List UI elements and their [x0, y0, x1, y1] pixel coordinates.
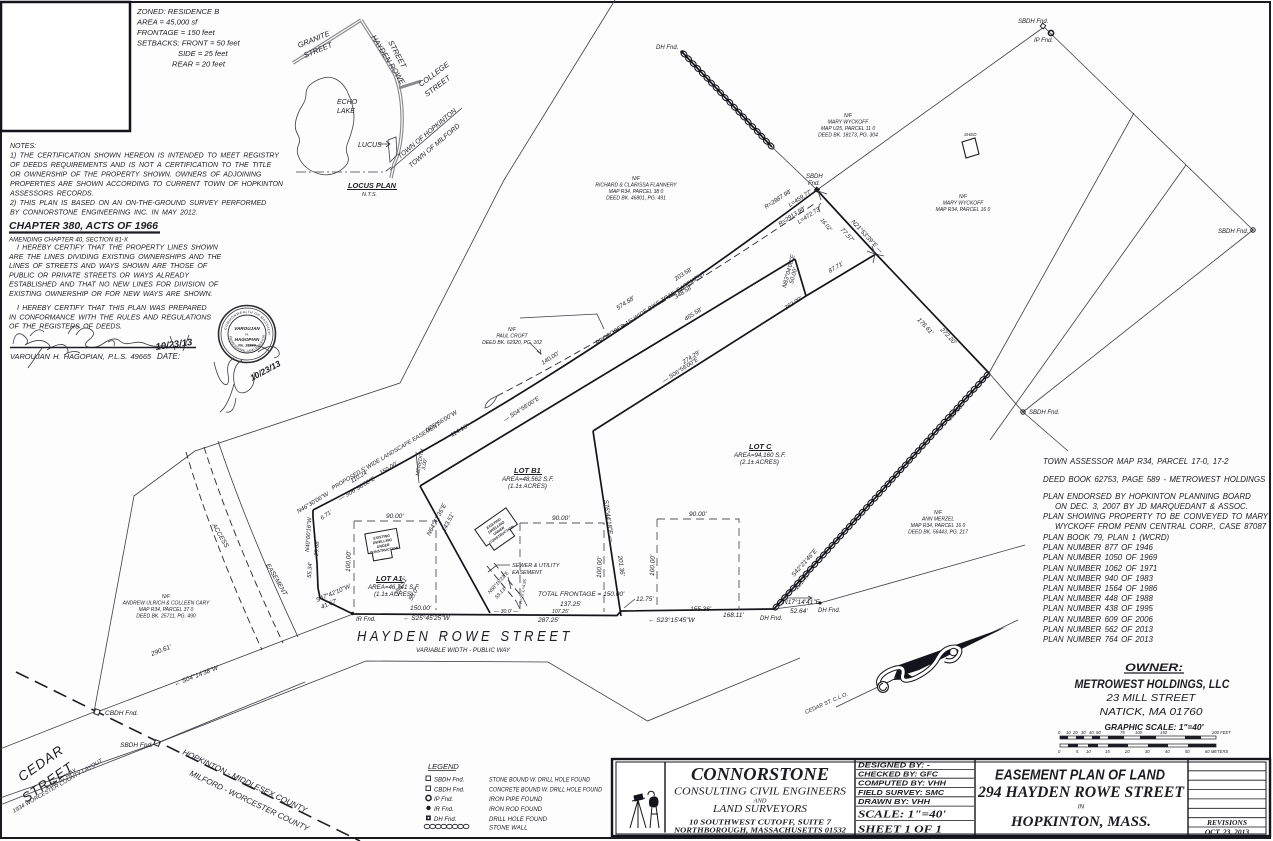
svg-text:CONCRETE BOUND W. DRILL HOLE F: CONCRETE BOUND W. DRILL HOLE FOUND — [489, 787, 603, 793]
svg-text:Fnd.: Fnd. — [808, 181, 820, 187]
svg-text:ECHO: ECHO — [337, 99, 358, 106]
svg-text:PLAN NUMBER 438 OF 1995: PLAN NUMBER 438 OF 1995 — [1043, 604, 1154, 613]
svg-text:ESTABLISHED AND THAT NO NEW LI: ESTABLISHED AND THAT NO NEW LINES FOR DI… — [9, 282, 219, 289]
svg-text:20: 20 — [1124, 749, 1130, 754]
svg-text:H.: H. — [245, 333, 249, 337]
svg-text:HAYDEN ROWE STREET: HAYDEN ROWE STREET — [357, 629, 573, 645]
svg-text:DEED BK. 46801, PG. 491: DEED BK. 46801, PG. 491 — [606, 196, 666, 202]
svg-text:1) THE CERTIFICATION SHOWN HER: 1) THE CERTIFICATION SHOWN HEREON IS INT… — [10, 153, 280, 160]
svg-text:DEED BK. 62920, PG. 102: DEED BK. 62920, PG. 102 — [482, 340, 542, 346]
svg-text:90.00': 90.00' — [689, 511, 707, 518]
svg-text:20: 20 — [1072, 730, 1078, 735]
svg-text:LOT B1: LOT B1 — [514, 466, 541, 475]
svg-text:OR OWNERSHIP OF THE PROPERTY S: OR OWNERSHIP OF THE PROPERTY SHOWN. OWNE… — [10, 172, 262, 179]
svg-text:FIELD SURVEY: SMC: FIELD SURVEY: SMC — [858, 790, 945, 797]
svg-text:LOCUS PLAN: LOCUS PLAN — [348, 181, 397, 190]
svg-text:SBDH: SBDH — [806, 174, 823, 180]
svg-text:100.00': 100.00' — [596, 556, 604, 578]
svg-text:— 30.0' —: — 30.0' — — [493, 609, 519, 615]
svg-text:10 SOUTHWEST CUTOFF, SUITE: 10 SOUTHWEST CUTOFF, SUITE 7 — [689, 819, 832, 827]
svg-text:LAKE: LAKE — [337, 108, 355, 115]
svg-text:DESIGNED BY: -: DESIGNED BY: - — [858, 763, 931, 770]
svg-text:← S25°45'25"W: ← S25°45'25"W — [403, 614, 450, 622]
svg-text:N/F: N/F — [508, 327, 517, 333]
svg-text:100.00': 100.00' — [345, 550, 353, 572]
svg-text:DH Fnd.: DH Fnd. — [760, 616, 782, 622]
svg-text:PUBLIC OR PRIVATE STREETS OR W: PUBLIC OR PRIVATE STREETS OR WAYS ALREAD… — [9, 272, 190, 279]
svg-text:IR Fnd.: IR Fnd. — [434, 807, 454, 813]
svg-text:ARE THE LINES DIVIDING EXISTIN: ARE THE LINES DIVIDING EXISTING OWNERSHI… — [8, 254, 222, 261]
svg-text:DH Fnd.: DH Fnd. — [818, 608, 840, 614]
svg-text:VARIABLE WIDTH - PUBLIC WAY: VARIABLE WIDTH - PUBLIC WAY — [416, 648, 511, 654]
svg-text:TOWN ASSESSOR MAP R34, PARCEL: TOWN ASSESSOR MAP R34, PARCEL 17-0, 17-2 — [1043, 457, 1229, 466]
svg-text:VAROUJAN: VAROUJAN — [234, 326, 260, 331]
svg-text:LAND SURVEYORS: LAND SURVEYORS — [712, 804, 807, 815]
svg-text:I HEREBY CERTIFY THAT THE PROP: I HEREBY CERTIFY THAT THE PROPERTY LINES… — [17, 245, 219, 252]
svg-text:MAP R34, PARCEL 38 0: MAP R34, PARCEL 38 0 — [609, 189, 664, 195]
svg-text:200 FEET: 200 FEET — [1211, 730, 1231, 735]
svg-text:HAGOPIAN: HAGOPIAN — [235, 337, 260, 342]
svg-text:MAP R34, PARCEL 16 0: MAP R34, PARCEL 16 0 — [936, 207, 991, 213]
svg-text:12.75': 12.75' — [636, 596, 654, 603]
svg-text:107.25': 107.25' — [552, 609, 570, 615]
svg-text:10: 10 — [1086, 749, 1091, 754]
svg-text:TOTAL FRONTAGE = 150.00': TOTAL FRONTAGE = 150.00' — [538, 591, 625, 598]
svg-text:SEWER & UTILITY: SEWER & UTILITY — [512, 563, 560, 569]
svg-text:LINES OF STREETS AND WAYS SHOW: LINES OF STREETS AND WAYS SHOWN ARE THOS… — [9, 263, 208, 270]
svg-text:PLAN SHOWING PROPERTY TO BE CO: PLAN SHOWING PROPERTY TO BE CONVEYED TO … — [1043, 512, 1269, 521]
svg-text:40: 40 — [1165, 749, 1170, 754]
svg-text:LEGEND: LEGEND — [428, 762, 459, 771]
svg-text:IN: IN — [1078, 804, 1085, 811]
svg-text:AREA=94,160 S.F.: AREA=94,160 S.F. — [733, 452, 786, 459]
svg-text:MARY WYCKOFF: MARY WYCKOFF — [943, 201, 985, 207]
svg-text:RICHARD & CLARISSA FLANNERY: RICHARD & CLARISSA FLANNERY — [595, 183, 677, 189]
svg-text:60 METERS: 60 METERS — [1205, 749, 1228, 754]
svg-text:PROPERTIES ARE SHOWN ACCORDING: PROPERTIES ARE SHOWN ACCORDING TO CURREN… — [10, 181, 284, 188]
svg-text:52.64': 52.64' — [790, 608, 808, 615]
svg-text:MAP R34, PARCEL 16 0: MAP R34, PARCEL 16 0 — [911, 523, 966, 529]
svg-text:40: 40 — [1089, 730, 1094, 735]
svg-text:55.34': 55.34' — [307, 561, 314, 578]
svg-text:294 HAYDEN ROWE STREET: 294 HAYDEN ROWE STREET — [977, 784, 1185, 801]
svg-text:100.00': 100.00' — [649, 554, 657, 576]
svg-text:SHED: SHED — [964, 132, 977, 137]
svg-text:30: 30 — [1081, 730, 1086, 735]
svg-text:IN CONFORMANCE WITH THE RULES: IN CONFORMANCE WITH THE RULES AND REGULA… — [9, 314, 211, 321]
svg-text:CONSULTING CIVIL ENGINEERS: CONSULTING CIVIL ENGINEERS — [674, 787, 846, 798]
svg-text:ON DEC. 3, 2007 BY JD MARQUEDA: ON DEC. 3, 2007 BY JD MARQUEDANT & ASSOC… — [1055, 502, 1248, 511]
svg-text:75: 75 — [1120, 730, 1125, 735]
svg-text:CHECKED BY: GFC: CHECKED BY: GFC — [858, 771, 939, 778]
svg-text:HOPKINTON, MASS.: HOPKINTON, MASS. — [1010, 814, 1151, 830]
svg-text:30: 30 — [1145, 749, 1150, 754]
svg-text:ANN MERZEL: ANN MERZEL — [921, 517, 954, 523]
svg-text:137.25': 137.25' — [560, 601, 582, 608]
svg-text:(1.1± ACRES): (1.1± ACRES) — [508, 483, 547, 490]
svg-text:AREA=48,562 S.F.: AREA=48,562 S.F. — [501, 476, 554, 483]
svg-text:PLAN NUMBER 877 OF 1946: PLAN NUMBER 877 OF 1946 — [1043, 543, 1154, 552]
svg-text:DEED BK. 25711, PG. 490: DEED BK. 25711, PG. 490 — [136, 614, 196, 620]
svg-text:2) THIS PLAN IS BASED ON AN ON: 2) THIS PLAN IS BASED ON AN ON-THE-GROUN… — [9, 200, 266, 207]
svg-text:STONE BOUND W. DRILL HOLE FOUN: STONE BOUND W. DRILL HOLE FOUND — [489, 778, 591, 784]
svg-text:EASEMENT: EASEMENT — [512, 570, 543, 576]
svg-text:STONE WALL: STONE WALL — [489, 826, 527, 832]
svg-text:OCT. 23, 2013: OCT. 23, 2013 — [1205, 828, 1250, 837]
svg-text:IRON PIPE FOUND: IRON PIPE FOUND — [489, 797, 543, 803]
svg-text:EASEMENT PLAN OF LAND: EASEMENT PLAN OF LAND — [995, 768, 1165, 784]
svg-text:LUCUS: LUCUS — [358, 142, 382, 149]
svg-text:IRON ROD FOUND: IRON ROD FOUND — [489, 807, 543, 813]
svg-text:N/F: N/F — [844, 113, 853, 119]
svg-text:PLAN NUMBER 1050 OF 1969: PLAN NUMBER 1050 OF 1969 — [1043, 553, 1158, 562]
svg-text:AREA = 45,000 sf: AREA = 45,000 sf — [136, 18, 198, 27]
svg-text:LOT A1: LOT A1 — [376, 574, 402, 583]
svg-text:IP Fnd.: IP Fnd. — [434, 797, 453, 803]
svg-text:PLAN NUMBER 448 OF 1988: PLAN NUMBER 448 OF 1988 — [1043, 594, 1154, 603]
svg-text:155.36': 155.36' — [690, 606, 712, 613]
svg-text:SCALE: 1"=40': SCALE: 1"=40' — [858, 810, 946, 821]
svg-text:PLAN NUMBER 764 OF 2013: PLAN NUMBER 764 OF 2013 — [1043, 635, 1154, 644]
svg-text:287.25': 287.25' — [537, 617, 560, 624]
svg-text:NOTES:: NOTES: — [10, 143, 36, 150]
svg-text:ZONED: RESIDENCE B: ZONED: RESIDENCE B — [136, 7, 219, 16]
svg-text:SETBACKS: FRONT = 50 feet: SETBACKS: FRONT = 50 feet — [137, 39, 241, 48]
svg-text:METROWEST HOLDINGS, LLC: METROWEST HOLDINGS, LLC — [1075, 677, 1230, 691]
svg-text:COMPUTED BY: VHH: COMPUTED BY: VHH — [858, 781, 947, 788]
svg-text:WYCKOFF FROM PENN CENTRAL CORP: WYCKOFF FROM PENN CENTRAL CORP., CASE 87… — [1055, 522, 1267, 531]
svg-text:PLAN BOOK 79, PLAN 1 (WCRD): PLAN BOOK 79, PLAN 1 (WCRD) — [1043, 533, 1170, 542]
svg-text:DRAWN BY: VHH: DRAWN BY: VHH — [858, 799, 931, 806]
svg-text:PLAN NUMBER 609 OF 2006: PLAN NUMBER 609 OF 2006 — [1043, 615, 1154, 624]
svg-text:IR Fnd.: IR Fnd. — [356, 617, 376, 623]
svg-text:SBDH Fnd.: SBDH Fnd. — [1218, 229, 1248, 235]
svg-text:LOT C: LOT C — [749, 442, 772, 451]
svg-text:DH Fnd.: DH Fnd. — [434, 817, 456, 823]
svg-text:90.00': 90.00' — [386, 513, 404, 520]
svg-text:(2.1± ACRES): (2.1± ACRES) — [740, 459, 779, 466]
svg-text:DEED BK. 18173, PG. 304: DEED BK. 18173, PG. 304 — [818, 133, 878, 139]
svg-text:BY CONNORSTONE ENGINEERING INC: BY CONNORSTONE ENGINEERING INC. IN MAY 2… — [10, 210, 198, 217]
svg-text:N.T.S.: N.T.S. — [362, 192, 377, 198]
svg-text:150: 150 — [1160, 730, 1168, 735]
svg-text:100: 100 — [1135, 730, 1143, 735]
svg-text:DEED BK. 56443, PG. 217: DEED BK. 56443, PG. 217 — [908, 530, 968, 536]
svg-text:PLAN NUMBER 562 OF 2013: PLAN NUMBER 562 OF 2013 — [1043, 625, 1154, 634]
svg-text:SIDE = 25 feet: SIDE = 25 feet — [178, 49, 228, 58]
svg-text:PLAN NUMBER 1062 OF 1971: PLAN NUMBER 1062 OF 1971 — [1043, 564, 1157, 573]
svg-text:SHEET 1 OF 1: SHEET 1 OF 1 — [858, 825, 942, 836]
svg-text:MAP R34, PARCEL 37 0: MAP R34, PARCEL 37 0 — [139, 607, 194, 613]
svg-text:N/F: N/F — [934, 510, 943, 516]
svg-text:NORTHBOROUGH, MASSACHUSETTS: NORTHBOROUGH, MASSACHUSETTS 01532 — [673, 827, 847, 835]
svg-text:REAR = 20 feet: REAR = 20 feet — [172, 60, 226, 69]
svg-text:SBDH Fnd.: SBDH Fnd. — [120, 742, 153, 749]
svg-text:DATE:: DATE: — [157, 352, 180, 361]
svg-text:DEED BOOK 62753, PAGE 589 - ME: DEED BOOK 62753, PAGE 589 - METROWEST HO… — [1043, 475, 1266, 484]
svg-text:FRONTAGE = 150 feet: FRONTAGE = 150 feet — [137, 28, 216, 37]
svg-text:168.11': 168.11' — [723, 612, 744, 619]
svg-text:ASSESSORS RECORDS.: ASSESSORS RECORDS. — [9, 191, 94, 198]
svg-text:10: 10 — [1066, 730, 1071, 735]
svg-text:29.68': 29.68' — [314, 539, 321, 557]
svg-text:15: 15 — [1105, 749, 1110, 754]
svg-text:90.00': 90.00' — [552, 515, 570, 522]
svg-text:N/F: N/F — [162, 594, 171, 600]
svg-text:CHAPTER 380, ACTS OF 1966: CHAPTER 380, ACTS OF 1966 — [9, 220, 158, 232]
svg-text:MAP U25, PARCEL 11 0: MAP U25, PARCEL 11 0 — [821, 126, 876, 132]
svg-text:SBDH Fnd.: SBDH Fnd. — [1029, 410, 1059, 416]
svg-text:← S23°15'45"W: ← S23°15'45"W — [648, 616, 695, 624]
svg-text:PAUL CROFT: PAUL CROFT — [496, 334, 528, 340]
svg-text:OF DEEDS REQUIREMENTS AND IS N: OF DEEDS REQUIREMENTS AND IS NOT A CERTI… — [10, 162, 272, 169]
svg-text:50: 50 — [1185, 749, 1190, 754]
svg-text:REVISIONS: REVISIONS — [1206, 818, 1247, 827]
svg-text:PLAN ENDORSED BY HOPKINTON PLA: PLAN ENDORSED BY HOPKINTON PLANNING BOAR… — [1043, 492, 1251, 501]
svg-text:EXISTING OWNERSHIP OR FOR NEW: EXISTING OWNERSHIP OR FOR NEW WAYS ARE S… — [9, 291, 213, 298]
svg-text:50: 50 — [1096, 730, 1101, 735]
svg-text:PLAN NUMBER 1564 OF 1986: PLAN NUMBER 1564 OF 1986 — [1043, 584, 1158, 593]
svg-text:AMENDING CHAPTER 40, SECTION 8: AMENDING CHAPTER 40, SECTION 81-X — [8, 237, 129, 244]
svg-text:VAROUJAN H. HAGOPIAN, P.L.S. 4: VAROUJAN H. HAGOPIAN, P.L.S. 49665 — [10, 352, 152, 361]
svg-text:OF THE REGISTERS OF DEEDS.: OF THE REGISTERS OF DEEDS. — [9, 324, 122, 331]
svg-text:ANDREW ULRICH & COLLEEN CARY: ANDREW ULRICH & COLLEEN CARY — [122, 601, 210, 607]
svg-text:SBDH Fnd.: SBDH Fnd. — [434, 778, 464, 784]
svg-text:23 MILL STREET: 23 MILL STREET — [1105, 692, 1197, 704]
svg-text:N17°14'41"E: N17°14'41"E — [783, 598, 821, 606]
svg-text:N/F: N/F — [632, 176, 641, 182]
svg-text:N/F: N/F — [959, 194, 968, 200]
svg-text:CBDH Fnd.: CBDH Fnd. — [434, 787, 465, 793]
svg-text:DRILL HOLE FOUND: DRILL HOLE FOUND — [489, 817, 548, 823]
svg-text:I HEREBY CERTIFY THAT THIS PLA: I HEREBY CERTIFY THAT THIS PLAN WAS PREP… — [17, 305, 207, 312]
svg-text:MARY WYCKOFF: MARY WYCKOFF — [828, 120, 870, 126]
svg-text:DH Fnd.: DH Fnd. — [656, 45, 678, 51]
svg-text:150.00': 150.00' — [410, 605, 432, 612]
svg-text:OWNER:: OWNER: — [1125, 662, 1183, 674]
svg-text:NATICK, MA 01760: NATICK, MA 01760 — [1100, 706, 1203, 718]
svg-text:PLAN NUMBER 940 OF 1983: PLAN NUMBER 940 OF 1983 — [1043, 574, 1154, 583]
svg-text:CONNORSTONE: CONNORSTONE — [691, 764, 829, 784]
svg-text:CBDH Fnd.: CBDH Fnd. — [105, 710, 138, 717]
svg-text:IP Fnd.: IP Fnd. — [1034, 38, 1053, 44]
